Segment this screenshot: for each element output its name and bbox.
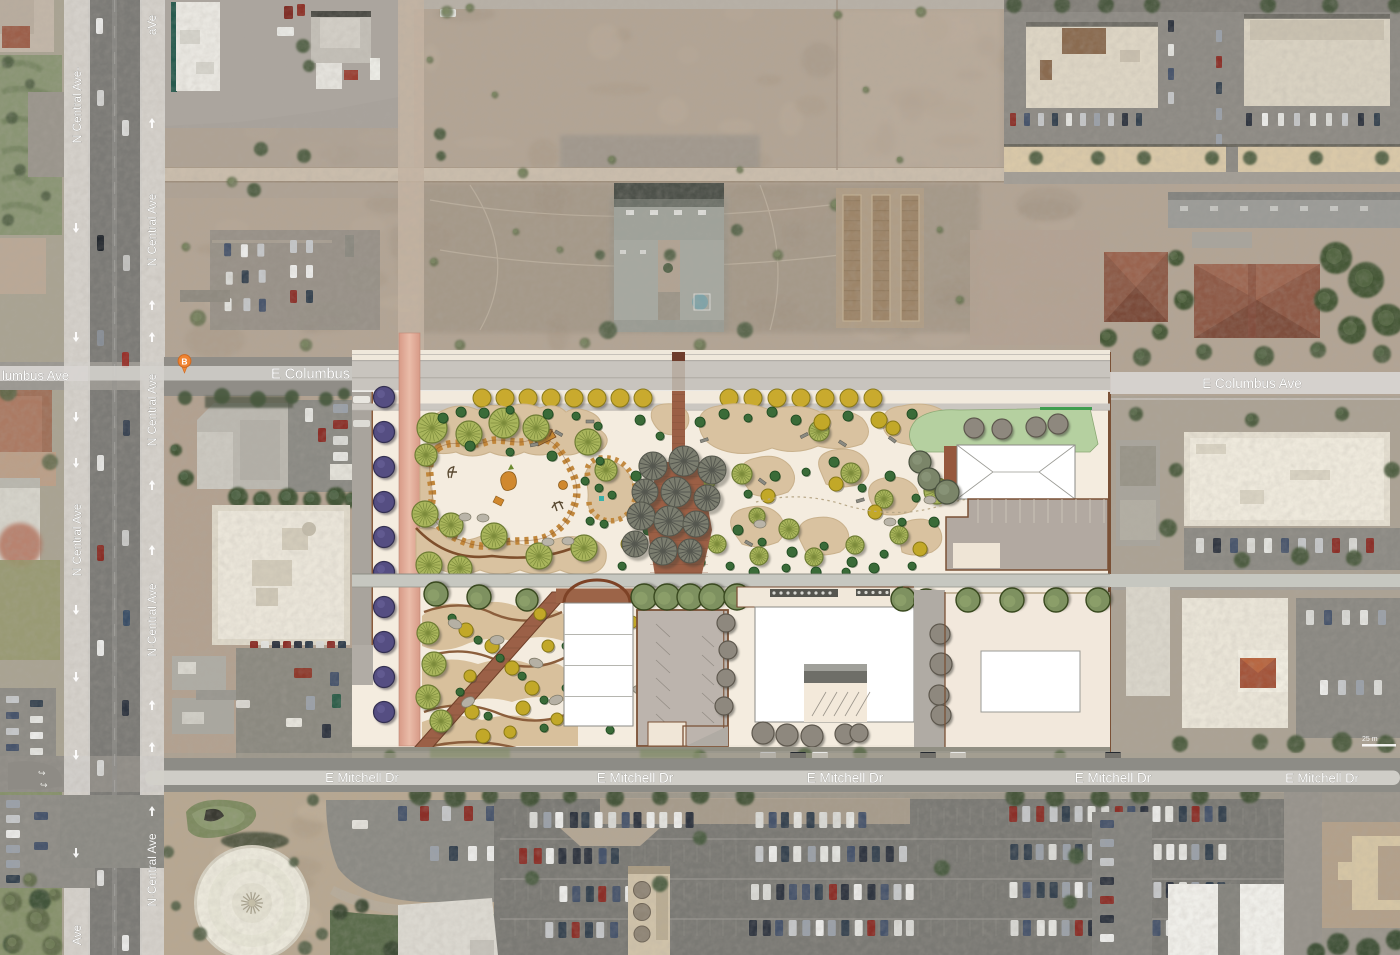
svg-text:aVe: aVe [145, 14, 159, 35]
svg-text:N Central Ave: N Central Ave [145, 193, 159, 266]
svg-text:E Mitchell Dr: E Mitchell Dr [1285, 771, 1359, 786]
svg-text:E Mitchell Dr: E Mitchell Dr [597, 771, 674, 786]
svg-text:B: B [181, 357, 187, 367]
svg-text:N Central Ave-: N Central Ave- [70, 67, 84, 144]
svg-text:E Columbus: E Columbus [271, 367, 350, 383]
svg-text:↪: ↪ [40, 780, 48, 790]
svg-text:E Mitchell Dr: E Mitchell Dr [1075, 771, 1152, 786]
svg-text:25 m: 25 m [1362, 736, 1378, 743]
svg-text:N·Central Ave: N·Central Ave [145, 833, 159, 907]
svg-text:N Central Ave: N Central Ave [70, 503, 84, 576]
svg-text:N Central Ave: N Central Ave [145, 373, 159, 446]
svg-text:↪: ↪ [38, 768, 46, 778]
svg-text:E Mitchell Dr: E Mitchell Dr [807, 771, 884, 786]
svg-text:N·Central Ave: N·Central Ave [145, 583, 159, 657]
svg-text:E Mitchell Dr: E Mitchell Dr [325, 770, 399, 785]
svg-text:Ave: Ave [70, 925, 84, 946]
svg-text:E Columbus Ave: E Columbus Ave [1202, 376, 1302, 391]
svg-text:lumbus Ave: lumbus Ave [2, 368, 69, 383]
